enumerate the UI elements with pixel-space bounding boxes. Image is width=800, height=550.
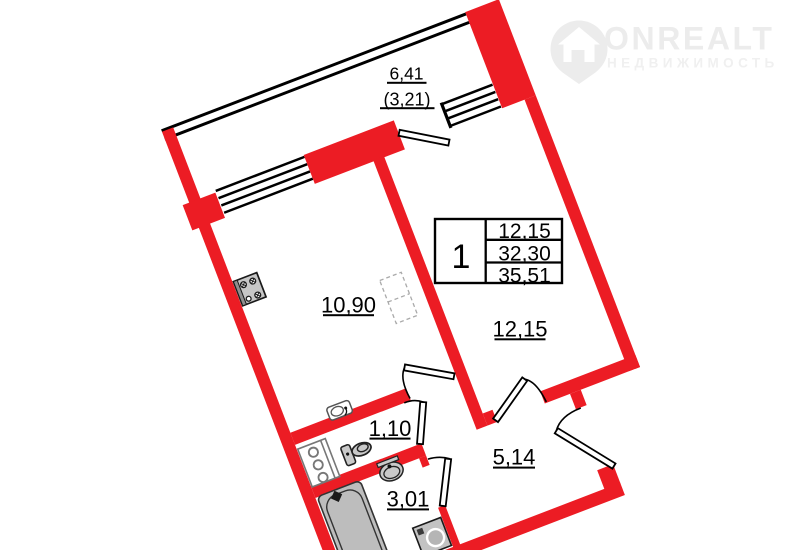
svg-text:1: 1 [452, 238, 471, 276]
svg-text:ONREALT: ONREALT [604, 21, 774, 57]
svg-text:12,15: 12,15 [498, 220, 551, 243]
svg-text:3,01: 3,01 [387, 487, 430, 512]
svg-text:32,30: 32,30 [498, 243, 551, 266]
svg-text:12,15: 12,15 [492, 317, 547, 342]
svg-text:35,51: 35,51 [498, 264, 551, 287]
svg-text:(3,21): (3,21) [383, 90, 430, 110]
svg-text:6,41: 6,41 [389, 64, 423, 84]
svg-text:НЕДВИЖИМОСТЬ: НЕДВИЖИМОСТЬ [607, 56, 779, 71]
svg-text:5,14: 5,14 [493, 445, 536, 470]
svg-text:10,90: 10,90 [321, 292, 376, 317]
svg-text:1,10: 1,10 [369, 416, 412, 441]
